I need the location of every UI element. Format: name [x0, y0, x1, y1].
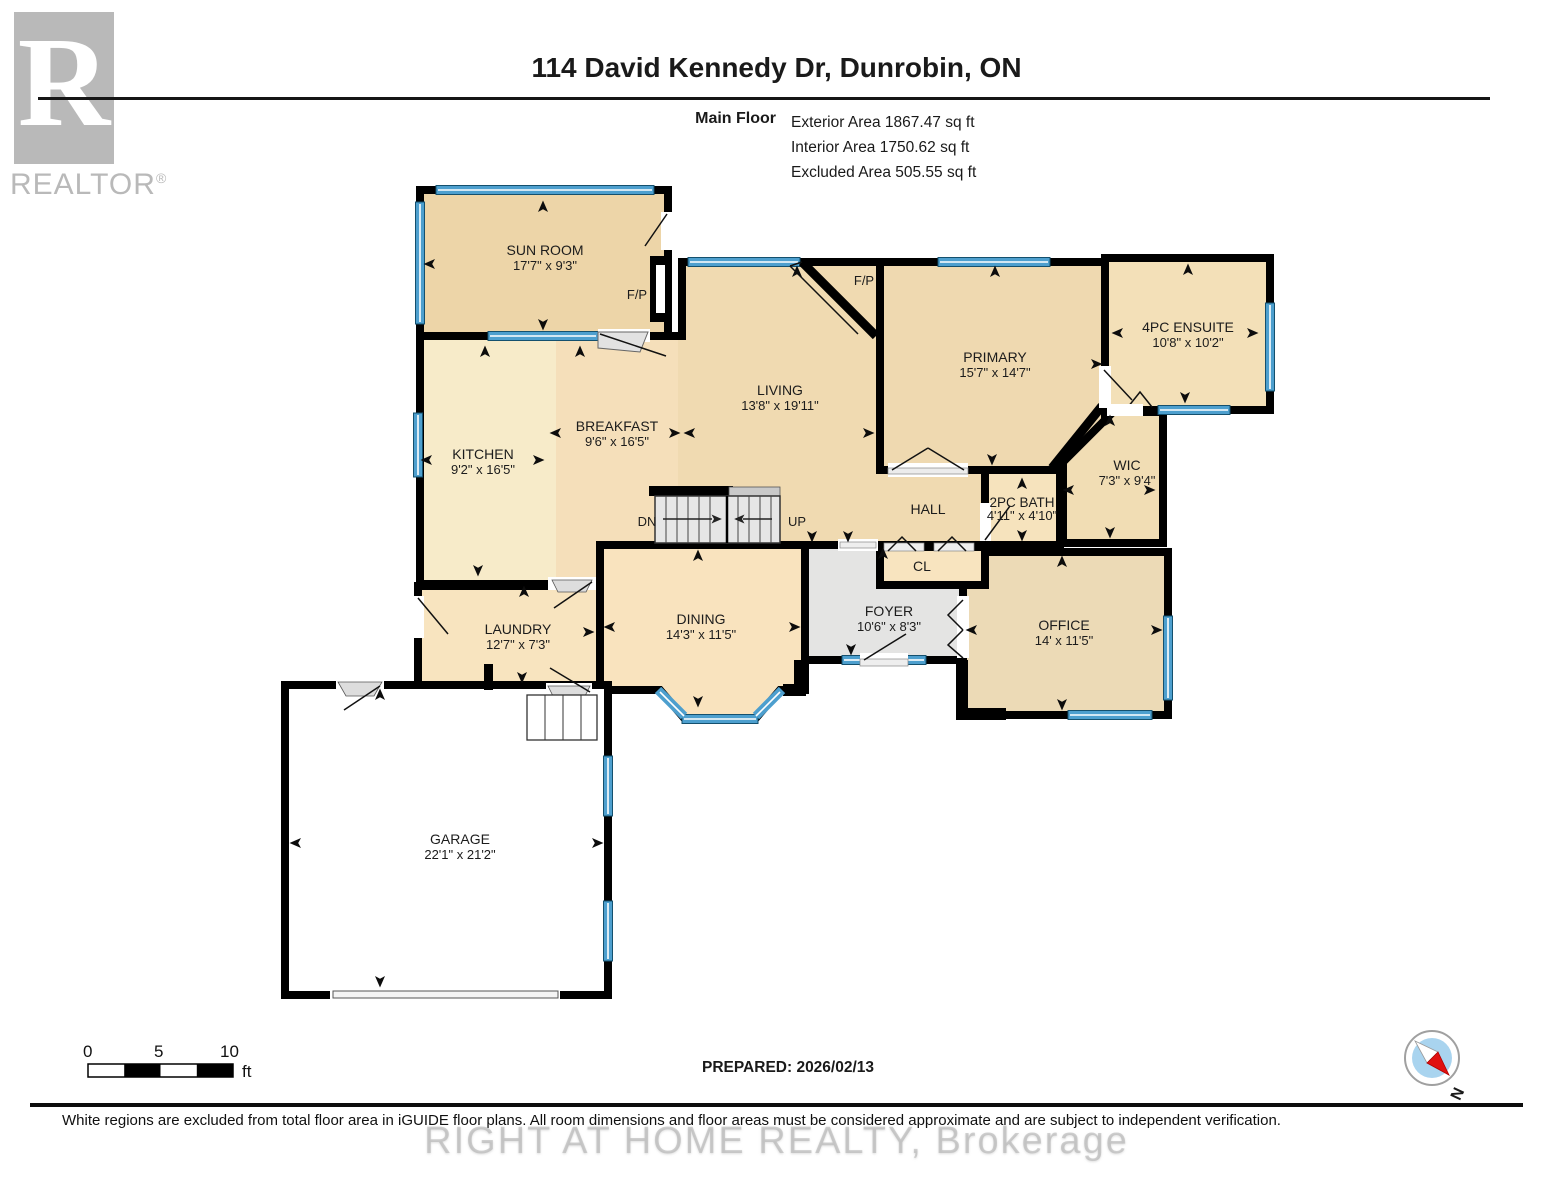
stairs-down-label: DN: [638, 514, 657, 529]
room-label-office: OFFICE 14' x 11'5": [1035, 618, 1094, 648]
stairs-up-label: UP: [788, 514, 806, 529]
room-label-foyer: FOYER 10'6" x 8'3": [857, 604, 921, 634]
room-label-laundry: LAUNDRY 12'7" x 7'3": [485, 622, 552, 652]
floorplan-page: R REALTOR® 114 David Kennedy Dr, Dunrobi…: [0, 0, 1553, 1200]
compass-icon: [1405, 1031, 1459, 1085]
exterior-area: Exterior Area 1867.47 sq ft: [791, 110, 976, 135]
hall-label: HALL: [910, 501, 945, 517]
fireplace-label-sunroom: F/P: [627, 287, 647, 302]
scale-tick-5: 5: [154, 1042, 163, 1062]
floorplan-drawing: [0, 0, 1553, 1200]
room-closet-shape: [880, 547, 985, 585]
scale-unit: ft: [242, 1062, 251, 1082]
room-label-garage: GARAGE 22'1" x 21'2": [424, 832, 495, 862]
title-divider: [38, 97, 1490, 100]
room-label-primary: PRIMARY 15'7" x 14'7": [959, 350, 1030, 380]
fireplace-label-living: F/P: [854, 273, 874, 288]
area-stats: Exterior Area 1867.47 sq ft Interior Are…: [791, 110, 976, 185]
footer-divider: [30, 1103, 1523, 1107]
room-label-breakfast: BREAKFAST 9'6" x 16'5": [576, 419, 658, 449]
page-title: 114 David Kennedy Dr, Dunrobin, ON: [0, 52, 1553, 84]
realtor-logo-word: REALTOR®: [10, 168, 167, 202]
room-label-bath: 2PC BATH 4'11" x 4'10": [987, 496, 1057, 522]
room-label-ensuite: 4PC ENSUITE 10'8" x 10'2": [1142, 320, 1234, 350]
room-label-living: LIVING 13'8" x 19'11": [741, 383, 819, 413]
main-stairs: [649, 486, 780, 543]
room-label-wic: WIC 7'3" x 9'4": [1099, 458, 1156, 488]
closet-label: CL: [913, 558, 931, 574]
excluded-area: Excluded Area 505.55 sq ft: [791, 160, 976, 185]
realtor-logo: R: [14, 12, 114, 164]
fireplace-sunroom: [650, 256, 672, 322]
laundry-wall-stub: [484, 664, 493, 690]
scale-tick-0: 0: [83, 1042, 92, 1062]
prepared-date: PREPARED: 2026/02/13: [702, 1059, 874, 1077]
floor-label: Main Floor: [560, 110, 776, 128]
room-label-sunroom: SUN ROOM 17'7" x 9'3": [507, 243, 584, 273]
room-label-dining: DINING 14'3" x 11'5": [666, 612, 736, 642]
brokerage-watermark: RIGHT AT HOME REALTY, Brokerage: [0, 1120, 1553, 1163]
scale-bar: [88, 1064, 233, 1077]
interior-area: Interior Area 1750.62 sq ft: [791, 135, 976, 160]
scale-tick-10: 10: [220, 1042, 239, 1062]
registered-mark: ®: [156, 170, 167, 186]
room-label-kitchen: KITCHEN 9'2" x 16'5": [451, 447, 515, 477]
garage-stairs: [527, 695, 597, 740]
